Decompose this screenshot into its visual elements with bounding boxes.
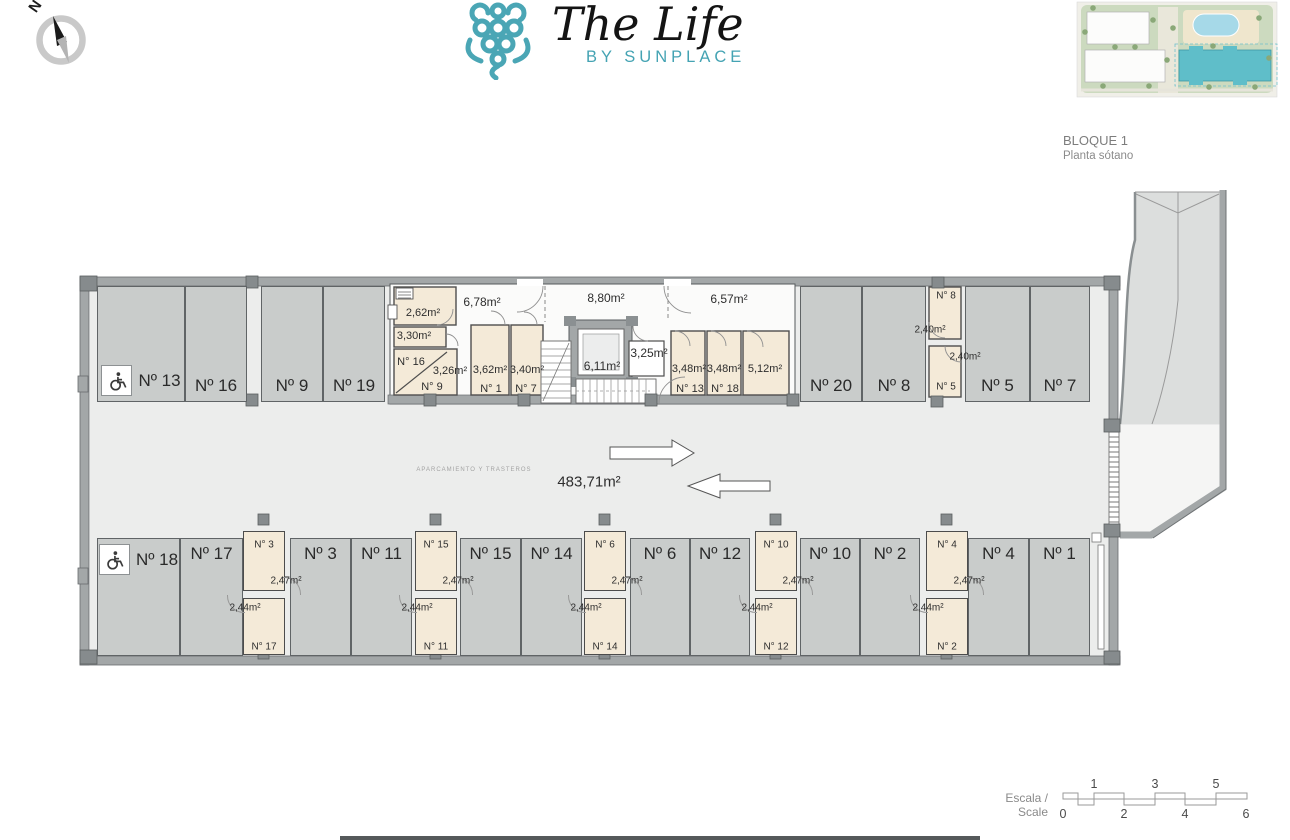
room-label: 3,48m² — [707, 363, 741, 375]
parking-space-inner: Nº 2 — [872, 539, 909, 569]
parking-space: Nº 7 — [1030, 286, 1090, 402]
parking-space: Nº 10 — [800, 538, 860, 656]
room-label: 2,40m² — [914, 325, 945, 336]
parking-space-label: Nº 14 — [530, 544, 572, 564]
parking-space-inner: Nº 20 — [808, 371, 854, 401]
storage-number-label: N° 6 — [595, 540, 615, 551]
scale-tick: 5 — [1213, 777, 1220, 791]
parking-space-inner: Nº 9 — [274, 371, 311, 401]
parking-space: Nº 13 — [97, 286, 185, 402]
parking-space-inner: Nº 4 — [980, 539, 1017, 569]
parking-space-label: Nº 15 — [469, 544, 511, 564]
storage-column: N° 42,47m²2,44m²N° 2 — [926, 531, 968, 657]
parking-space-inner: Nº 16 — [193, 371, 239, 401]
room-label: 3,40m² — [510, 364, 544, 376]
scale-tick: 3 — [1152, 777, 1159, 791]
parking-space-label: Nº 9 — [276, 376, 309, 396]
storage-number-label: N° 4 — [937, 540, 957, 551]
parking-space-label: Nº 13 — [138, 371, 180, 391]
storage-number-label: N° 17 — [251, 642, 276, 653]
storage-area-label: 2,44m² — [570, 603, 601, 614]
storage-area-label: 2,47m² — [442, 576, 473, 587]
scale-tick: 2 — [1121, 807, 1128, 821]
parking-space-label: Nº 7 — [1044, 376, 1077, 396]
scale-bar-label: Escala / Scale — [973, 791, 1048, 819]
parking-space-label: Nº 19 — [333, 376, 375, 396]
storage-number-label: N° 2 — [937, 642, 957, 653]
room-label: 3,26m² — [433, 365, 467, 377]
accessible-parking-icon — [99, 544, 130, 575]
scale-tick: 4 — [1182, 807, 1189, 821]
parking-space-inner: Nº 18 — [97, 539, 180, 580]
parking-space: Nº 8 — [862, 286, 926, 402]
room-label: 2,40m² — [949, 352, 980, 363]
room-label: 3,25m² — [630, 346, 667, 360]
parking-space-label: Nº 12 — [699, 544, 741, 564]
parking-space-inner: Nº 5 — [979, 371, 1016, 401]
storage-area-label: 2,44m² — [401, 603, 432, 614]
parking-space: Nº 15 — [460, 538, 521, 656]
storage-area-label: 2,44m² — [912, 603, 943, 614]
parking-space-inner: Nº 6 — [642, 539, 679, 569]
scale-tick: 1 — [1091, 777, 1098, 791]
parking-space-inner: Nº 15 — [467, 539, 513, 569]
parking-space: Nº 3 — [290, 538, 351, 656]
parking-space: Nº 20 — [800, 286, 862, 402]
parking-space-inner: Nº 7 — [1042, 371, 1079, 401]
room-label: N° 13 — [676, 383, 704, 395]
parking-space-label: Nº 1 — [1043, 544, 1076, 564]
aisle-note-label: APARCAMIENTO Y TRASTEROS — [416, 467, 531, 473]
scale-tick: 0 — [1060, 807, 1067, 821]
parking-space-inner: Nº 19 — [331, 371, 377, 401]
storage-area-label: 2,47m² — [782, 576, 813, 587]
room-label: 6,78m² — [463, 295, 500, 309]
parking-space-label: Nº 4 — [982, 544, 1015, 564]
scale-tick: 6 — [1243, 807, 1250, 821]
total-area-label: 483,71m² — [557, 474, 620, 491]
storage-number-label: N° 15 — [423, 540, 448, 551]
storage-area-label: 2,47m² — [953, 576, 984, 587]
parking-space-inner: Nº 13 — [99, 360, 182, 401]
floor-plan: Nº 13Nº 16Nº 9Nº 19Nº 20Nº 8Nº 5Nº 7 Nº … — [0, 0, 1290, 840]
room-label: 2,62m² — [406, 307, 440, 319]
parking-space-inner: Nº 8 — [876, 371, 913, 401]
parking-space-inner: Nº 17 — [188, 539, 234, 569]
storage-column: N° 32,47m²2,44m²N° 17 — [243, 531, 285, 657]
room-label: N° 5 — [936, 382, 956, 393]
parking-space-label: Nº 10 — [809, 544, 851, 564]
storage-area-label: 2,47m² — [270, 576, 301, 587]
parking-space: Nº 4 — [968, 538, 1029, 656]
room-label: 3,48m² — [672, 363, 706, 375]
parking-space-label: Nº 17 — [190, 544, 232, 564]
storage-column: N° 152,47m²2,44m²N° 11 — [415, 531, 457, 657]
parking-space: Nº 5 — [965, 286, 1030, 402]
accessible-parking-icon — [101, 365, 132, 396]
parking-space: Nº 6 — [630, 538, 690, 656]
parking-space: Nº 9 — [261, 286, 323, 402]
parking-space-inner: Nº 11 — [359, 539, 404, 569]
parking-space-label: Nº 6 — [644, 544, 677, 564]
parking-space-label: Nº 11 — [361, 544, 402, 564]
storage-number-label: N° 3 — [254, 540, 274, 551]
storage-area-label: 2,44m² — [741, 603, 772, 614]
room-label: 8,80m² — [587, 291, 624, 305]
room-label: 6,11m² — [584, 359, 620, 373]
parking-space-inner: Nº 3 — [302, 539, 339, 569]
room-label: N° 8 — [936, 291, 956, 302]
parking-space: Nº 19 — [323, 286, 385, 402]
room-label: N° 9 — [421, 381, 443, 393]
storage-number-label: N° 14 — [592, 642, 617, 653]
storage-area-label: 2,44m² — [229, 603, 260, 614]
parking-space: Nº 18 — [97, 538, 180, 656]
parking-space-inner: Nº 1 — [1041, 539, 1078, 569]
parking-space-label: Nº 8 — [878, 376, 911, 396]
room-label: 6,57m² — [710, 292, 747, 306]
parking-space-label: Nº 16 — [195, 376, 237, 396]
room-label: 5,12m² — [748, 363, 782, 375]
storage-column: N° 62,47m²2,44m²N° 14 — [584, 531, 626, 657]
room-label: N° 7 — [515, 383, 537, 395]
parking-space-label: Nº 3 — [304, 544, 337, 564]
parking-space-label: Nº 20 — [810, 376, 852, 396]
storage-column: N° 102,47m²2,44m²N° 12 — [755, 531, 797, 657]
parking-space-label: Nº 5 — [981, 376, 1014, 396]
parking-space-label: Nº 18 — [136, 550, 178, 570]
parking-space-label: Nº 2 — [874, 544, 907, 564]
floorplan-geometry — [0, 0, 1290, 840]
room-label: N° 18 — [711, 383, 739, 395]
parking-space: Nº 16 — [185, 286, 247, 402]
parking-space-inner: Nº 12 — [697, 539, 743, 569]
storage-number-label: N° 10 — [763, 540, 788, 551]
room-label: 3,62m² — [473, 364, 507, 376]
room-label: N° 1 — [480, 383, 502, 395]
room-label: N° 16 — [397, 356, 425, 368]
parking-space: Nº 1 — [1029, 538, 1090, 656]
storage-number-label: N° 12 — [763, 642, 788, 653]
parking-space-inner: Nº 10 — [807, 539, 853, 569]
parking-space-inner: Nº 14 — [528, 539, 574, 569]
storage-area-label: 2,47m² — [611, 576, 642, 587]
room-label: 3,30m² — [397, 330, 431, 342]
storage-number-label: N° 11 — [424, 642, 448, 653]
